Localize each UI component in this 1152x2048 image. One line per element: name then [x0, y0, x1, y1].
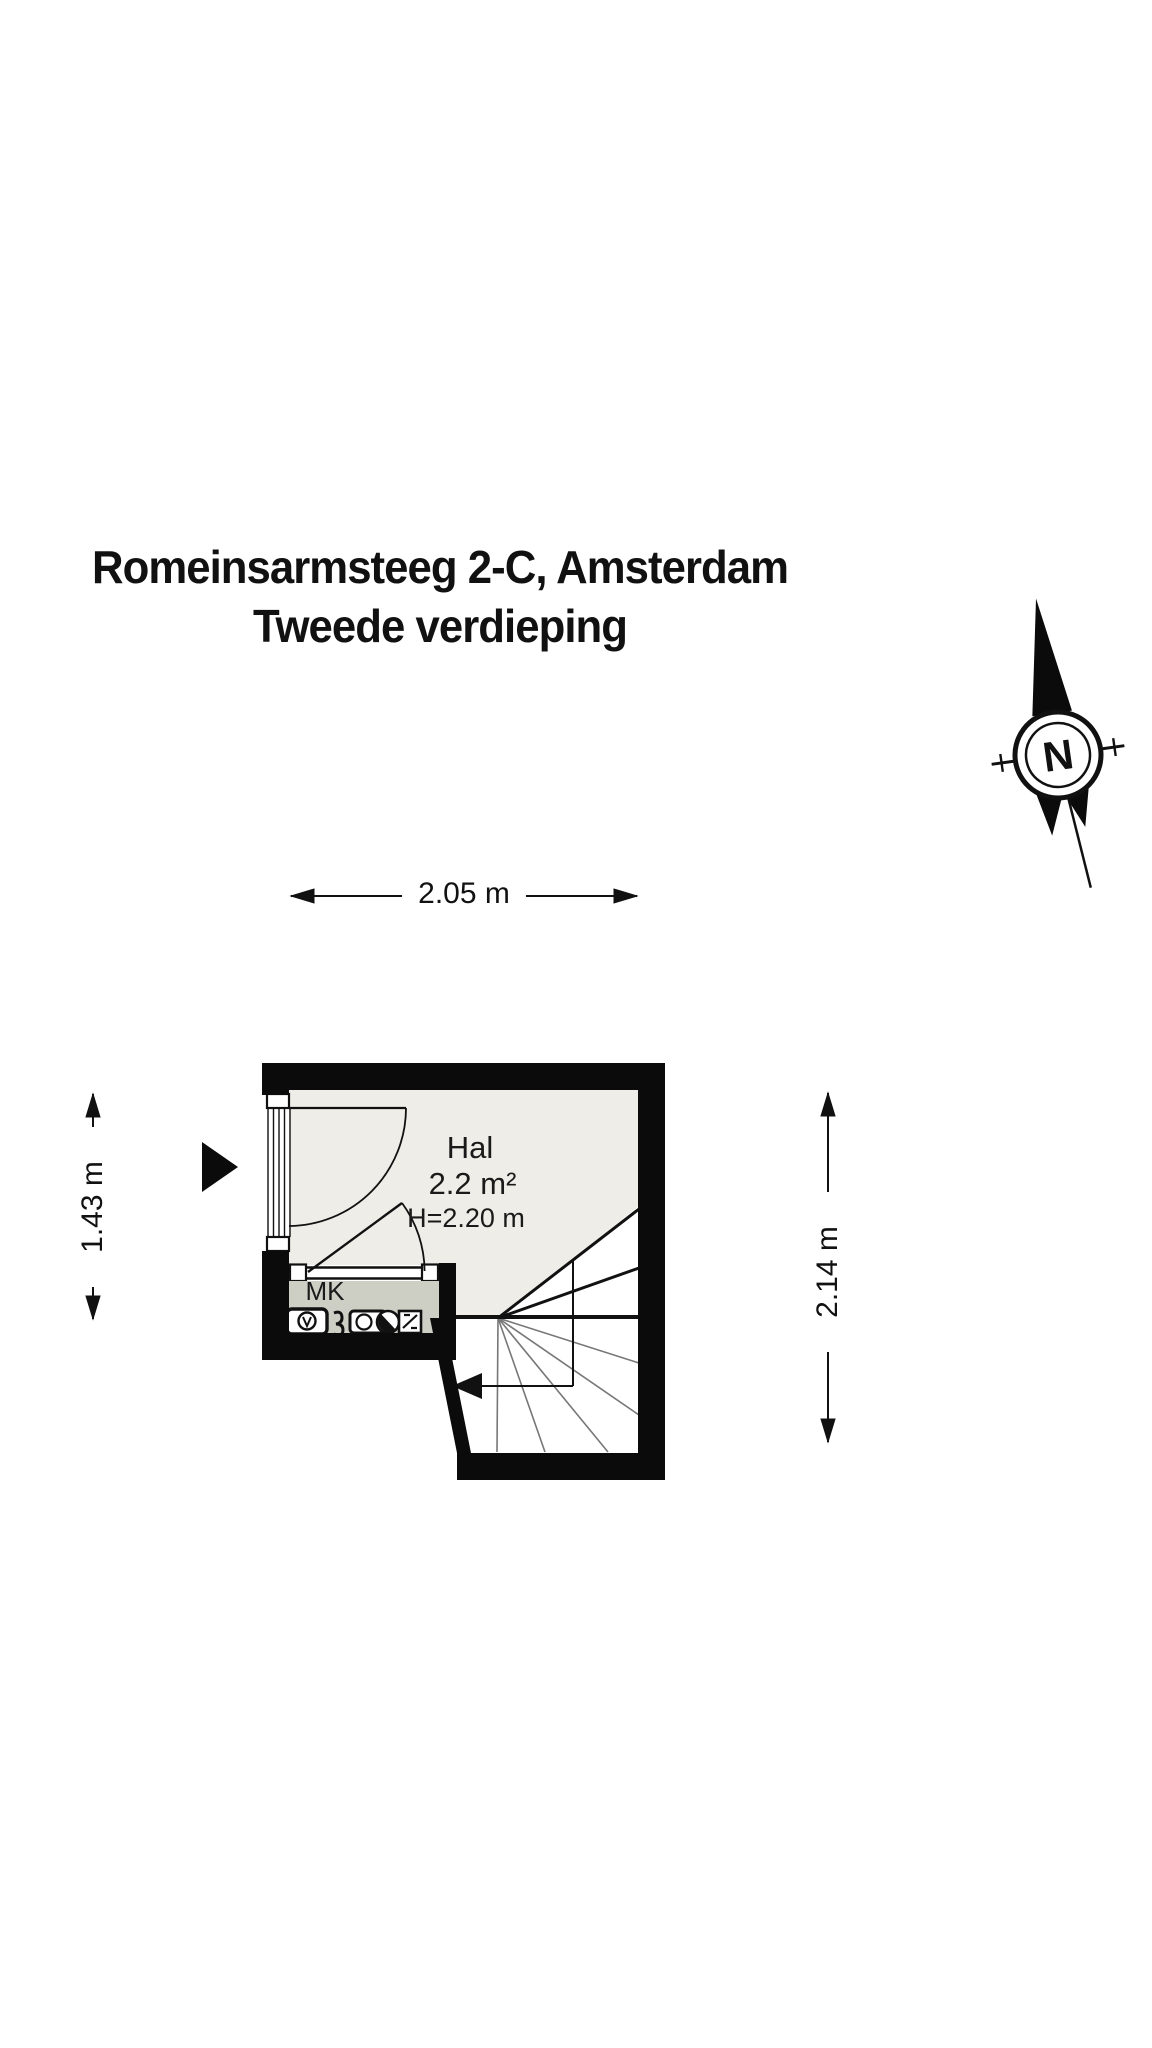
entrance-arrow-icon	[202, 1142, 238, 1192]
room-area-hal: 2.2 m²	[370, 1166, 575, 1202]
utility-meter-icons	[287, 1309, 421, 1335]
dimension-label-height-right: 2.14 m	[810, 1192, 846, 1352]
gas-meter-icon	[287, 1309, 327, 1334]
left-wall-window	[262, 1094, 290, 1251]
room-label-hal: Hal	[370, 1130, 570, 1166]
water-meter-icon	[377, 1311, 399, 1333]
room-label-mk: MK	[275, 1276, 375, 1307]
compass-north-label: N	[1040, 730, 1077, 781]
wall-bottom-left	[262, 1333, 447, 1360]
plan-title: Romeinsarmsteeg 2-C, Amsterdam Tweede ve…	[22, 538, 858, 656]
dimension-label-width: 2.05 m	[402, 877, 526, 911]
heater-unit-icon	[399, 1311, 421, 1333]
compass-needle	[1016, 596, 1072, 716]
wall-right	[638, 1063, 665, 1480]
wall-top	[262, 1063, 665, 1090]
plan-title-floor: Tweede verdieping	[22, 597, 858, 656]
north-compass: N	[970, 589, 1144, 899]
wall-left-upper	[262, 1063, 289, 1095]
room-ceiling-height-hal: H=2.20 m	[366, 1203, 566, 1234]
wall-stair-bottom	[457, 1453, 665, 1480]
floorplan-page: N Romeinsarmsteeg 2-C, Amsterdam Tweede …	[0, 0, 1152, 2048]
floorplan-drawing: N	[0, 0, 1152, 2048]
plan-title-address: Romeinsarmsteeg 2-C, Amsterdam	[22, 538, 858, 597]
dimension-label-height-left: 1.43 m	[75, 1127, 111, 1287]
